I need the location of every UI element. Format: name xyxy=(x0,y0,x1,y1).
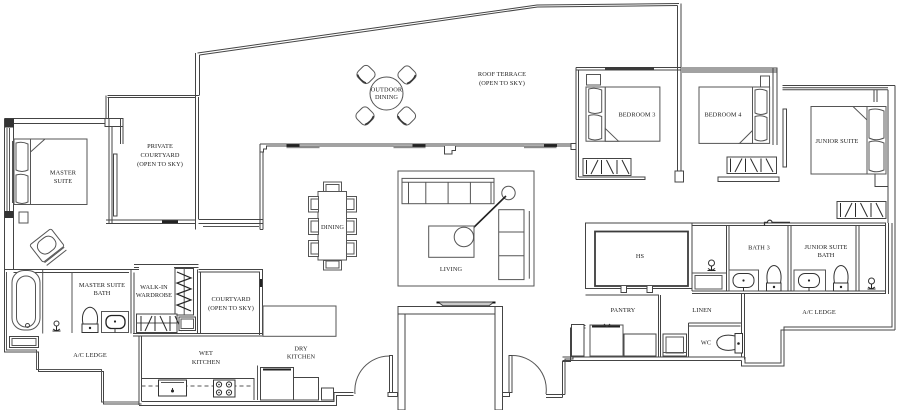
svg-text:OUTDOOR: OUTDOOR xyxy=(371,87,403,94)
svg-text:WC: WC xyxy=(701,340,711,347)
svg-text:BATH: BATH xyxy=(818,252,835,259)
svg-text:(OPEN TO SKY): (OPEN TO SKY) xyxy=(137,161,183,168)
svg-text:DINING: DINING xyxy=(375,94,398,101)
svg-text:BATH 3: BATH 3 xyxy=(748,245,770,252)
svg-text:MASTER SUITE: MASTER SUITE xyxy=(79,282,125,289)
svg-text:ROOF TERRACE: ROOF TERRACE xyxy=(478,71,526,78)
svg-text:JUNIOR SUITE: JUNIOR SUITE xyxy=(815,138,858,145)
svg-text:KITCHEN: KITCHEN xyxy=(192,359,221,366)
svg-text:DINING: DINING xyxy=(321,224,344,231)
svg-text:BEDROOM 3: BEDROOM 3 xyxy=(618,112,655,119)
svg-text:MASTER: MASTER xyxy=(50,170,77,177)
svg-text:(OPEN TO SKY): (OPEN TO SKY) xyxy=(208,305,254,312)
svg-text:A/C LEDGE: A/C LEDGE xyxy=(802,309,836,316)
svg-text:COURTYARD: COURTYARD xyxy=(140,152,179,159)
svg-text:WET: WET xyxy=(199,350,213,357)
svg-text:HS: HS xyxy=(636,253,645,260)
svg-text:PRIVATE: PRIVATE xyxy=(147,143,173,150)
svg-text:BEDROOM 4: BEDROOM 4 xyxy=(704,112,742,119)
svg-text:WALK-IN: WALK-IN xyxy=(140,284,168,291)
svg-text:KITCHEN: KITCHEN xyxy=(287,354,316,361)
svg-text:PANTRY: PANTRY xyxy=(611,307,636,314)
svg-text:SUITE: SUITE xyxy=(54,178,72,185)
svg-text:JUNIOR SUITE: JUNIOR SUITE xyxy=(804,244,847,251)
svg-text:COURTYARD: COURTYARD xyxy=(211,296,250,303)
svg-text:WARDROBE: WARDROBE xyxy=(136,292,172,299)
svg-text:BATH: BATH xyxy=(94,290,111,297)
svg-text:A/C LEDGE: A/C LEDGE xyxy=(73,352,107,359)
svg-text:LINEN: LINEN xyxy=(692,307,712,314)
svg-text:LIVING: LIVING xyxy=(440,266,463,273)
svg-text:DRY: DRY xyxy=(294,346,308,353)
svg-text:(OPEN TO SKY): (OPEN TO SKY) xyxy=(479,80,525,87)
